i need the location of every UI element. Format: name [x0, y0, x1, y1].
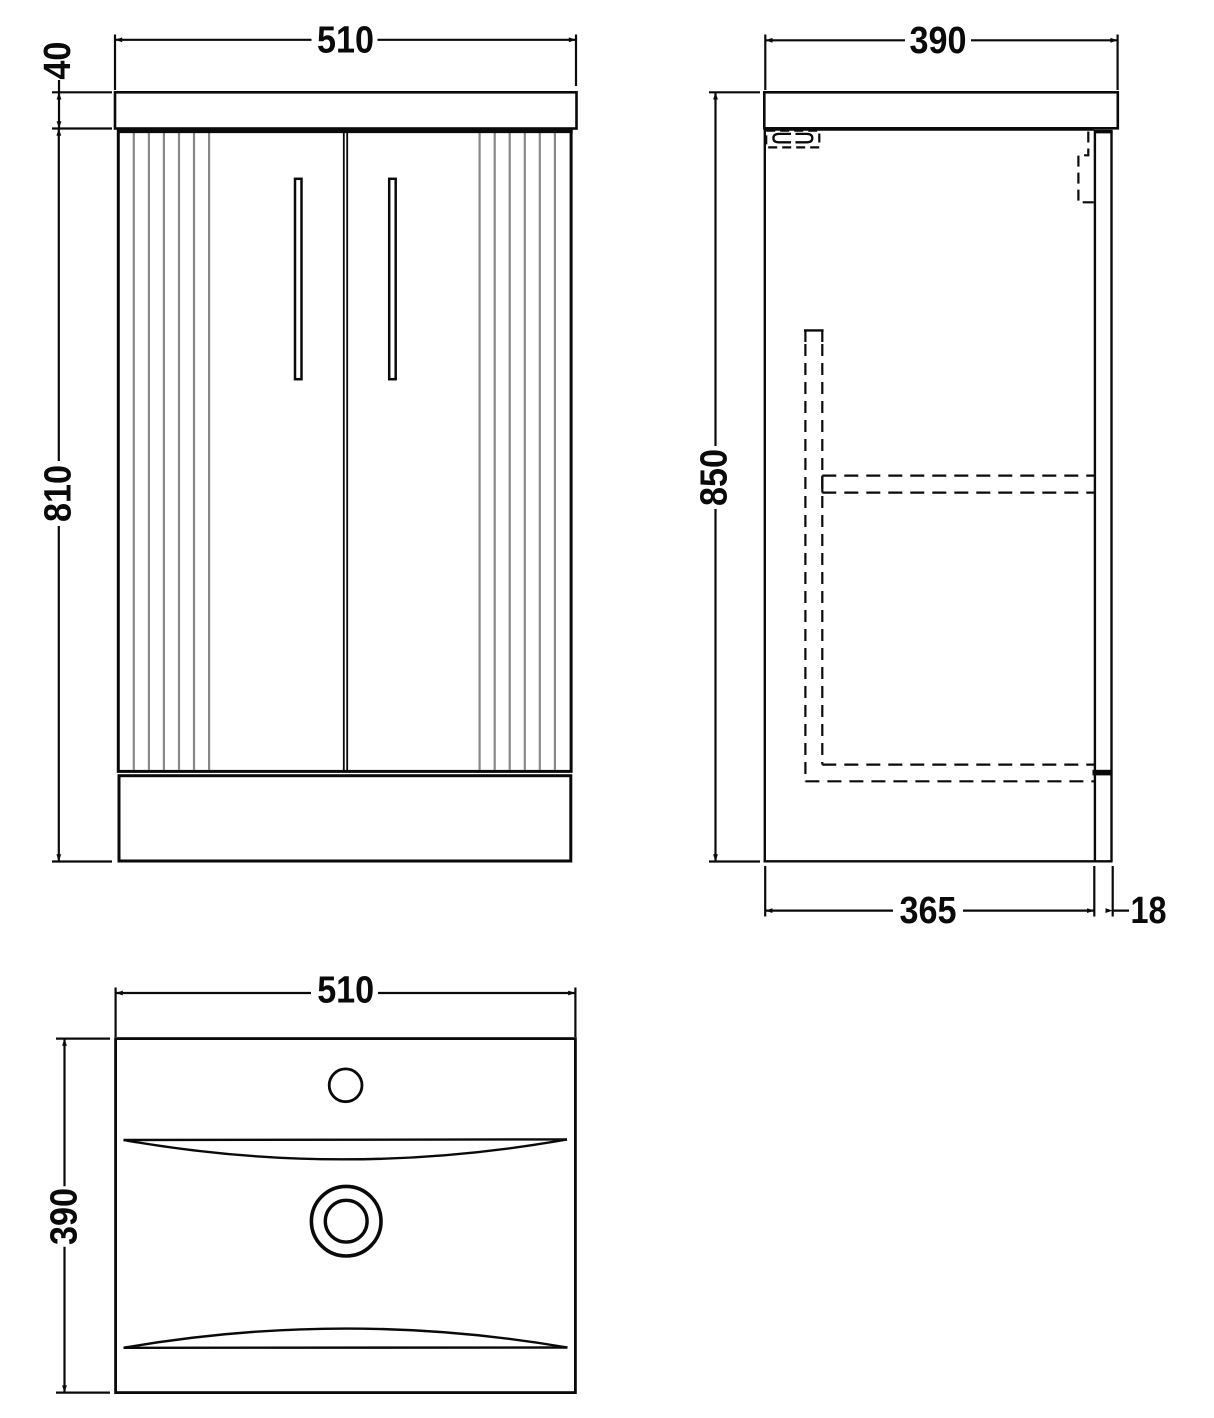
svg-text:390: 390 [43, 1188, 85, 1245]
svg-text:40: 40 [37, 42, 79, 80]
svg-text:850: 850 [694, 449, 736, 506]
svg-text:510: 510 [317, 970, 374, 1012]
svg-text:365: 365 [900, 890, 957, 932]
svg-text:18: 18 [1131, 890, 1167, 932]
svg-text:810: 810 [38, 465, 80, 522]
svg-text:510: 510 [317, 20, 374, 62]
svg-text:390: 390 [910, 20, 967, 62]
